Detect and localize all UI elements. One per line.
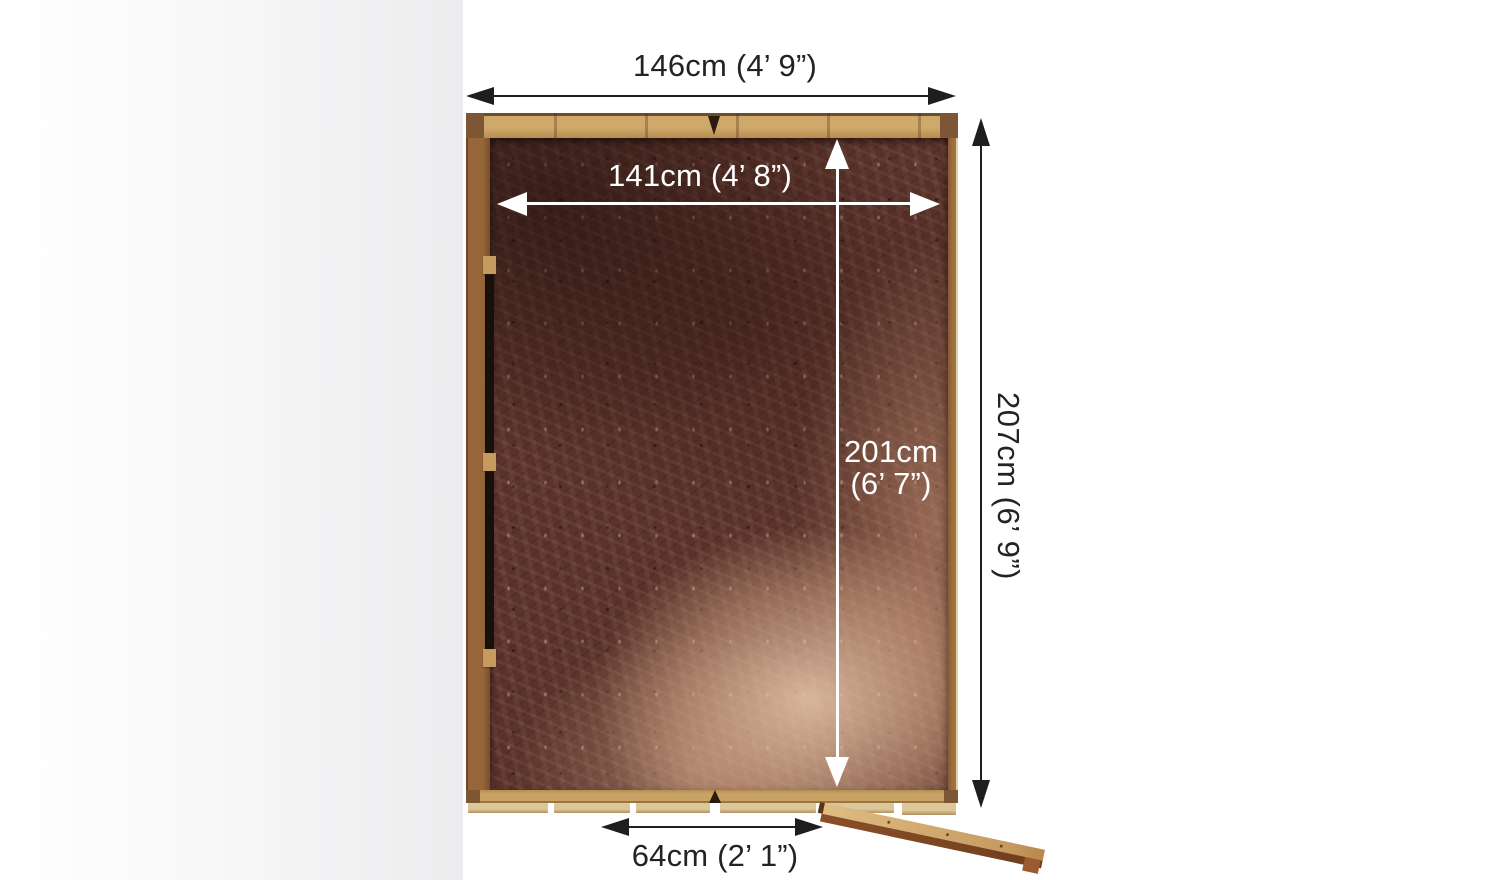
plank-end-foot bbox=[1022, 857, 1041, 874]
arrowhead-down-icon bbox=[825, 757, 849, 787]
background-shade bbox=[0, 0, 463, 880]
arrowhead-up-icon bbox=[825, 139, 849, 169]
internal-depth-label: 201cm (6’ 7”) bbox=[841, 436, 941, 500]
external-width-label: 146cm (4’ 9”) bbox=[470, 48, 980, 84]
top-frame-rail bbox=[466, 113, 958, 138]
floor-bearer-segment bbox=[554, 803, 630, 813]
internal-depth-imperial: (6’ 7”) bbox=[841, 468, 941, 500]
bottom-rail-notch bbox=[709, 790, 721, 803]
arrowhead-right-icon bbox=[910, 192, 940, 216]
arrowhead-left-icon bbox=[466, 87, 494, 105]
arrowhead-left-icon bbox=[497, 192, 527, 216]
dimension-line bbox=[490, 95, 932, 97]
arrowhead-right-icon bbox=[928, 87, 956, 105]
internal-width-label: 141cm (4’ 8”) bbox=[480, 158, 920, 194]
arrowhead-up-icon bbox=[972, 118, 990, 146]
floor-bearer-segment bbox=[902, 803, 956, 815]
floor-bearer-row bbox=[466, 803, 958, 814]
external-depth-label: 207cm (6’ 9”) bbox=[990, 392, 1026, 580]
floor-bearer-segment bbox=[636, 803, 710, 813]
product-dimension-image: 146cm (4’ 9”) 141cm (4’ 8”) 201cm (6’ 7”… bbox=[0, 0, 1500, 880]
arrowhead-left-icon bbox=[601, 818, 629, 836]
door-width-label: 64cm (2’ 1”) bbox=[505, 838, 925, 874]
internal-depth-value: 201cm bbox=[841, 436, 941, 468]
dimension-line bbox=[625, 826, 799, 828]
left-rail-block bbox=[483, 649, 496, 667]
top-rail-notch bbox=[708, 116, 720, 135]
arrowhead-right-icon bbox=[795, 818, 823, 836]
bottom-frame-rail bbox=[466, 790, 958, 803]
arrowhead-down-icon bbox=[972, 780, 990, 808]
dimension-line bbox=[980, 144, 982, 782]
left-rail-block bbox=[483, 453, 496, 471]
dimension-line bbox=[836, 165, 839, 761]
dimension-line bbox=[524, 202, 912, 205]
left-rail-block bbox=[483, 256, 496, 274]
floor-bearer-segment bbox=[720, 803, 816, 813]
floor-bearer-segment bbox=[468, 803, 548, 813]
right-frame-rail bbox=[948, 138, 958, 790]
